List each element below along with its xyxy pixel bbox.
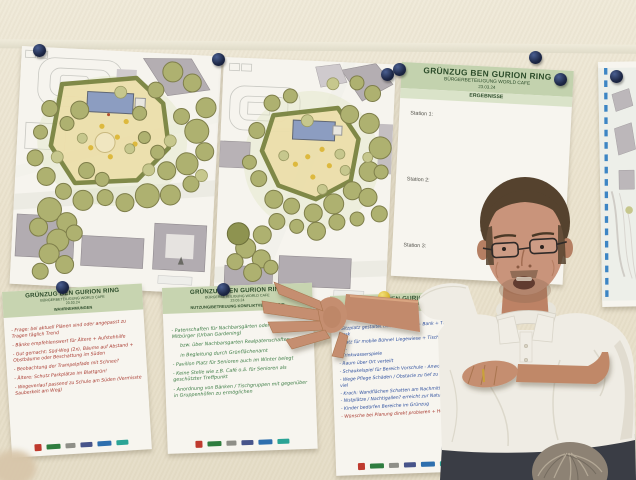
logo [97,441,111,447]
eye [502,247,506,251]
push-pin-icon [33,44,46,57]
push-pin-icon [393,63,406,76]
flipchart-perceptions: GRÜNZUG BEN GURION RING BÜRGERBETEILIGUN… [2,283,152,457]
polo-button [524,358,528,362]
push-pin-icon [56,281,69,294]
station-1-label: Station 1: [410,111,433,118]
flipchart-left-notes: - Frage: bei aktuell Plänen sind oder an… [11,320,143,399]
wedding-ring [483,369,484,382]
logo [34,444,41,451]
push-pin-icon [529,51,542,64]
push-pin-icon [610,70,623,83]
logo [65,443,75,449]
presenter [180,170,636,480]
polo-button [524,344,528,348]
logo [80,442,92,448]
logo [116,440,128,446]
workshop-photo: GRÜNZUG BEN GURION RING BÜRGERBETEILIGUN… [0,0,636,480]
footer-logos [11,437,151,453]
logo [46,444,60,450]
push-pin-icon [554,73,567,86]
pointing-arm [262,282,420,358]
push-pin-icon [212,53,225,66]
stubble [499,277,551,303]
presenter-head [477,177,573,303]
eye [540,245,544,249]
